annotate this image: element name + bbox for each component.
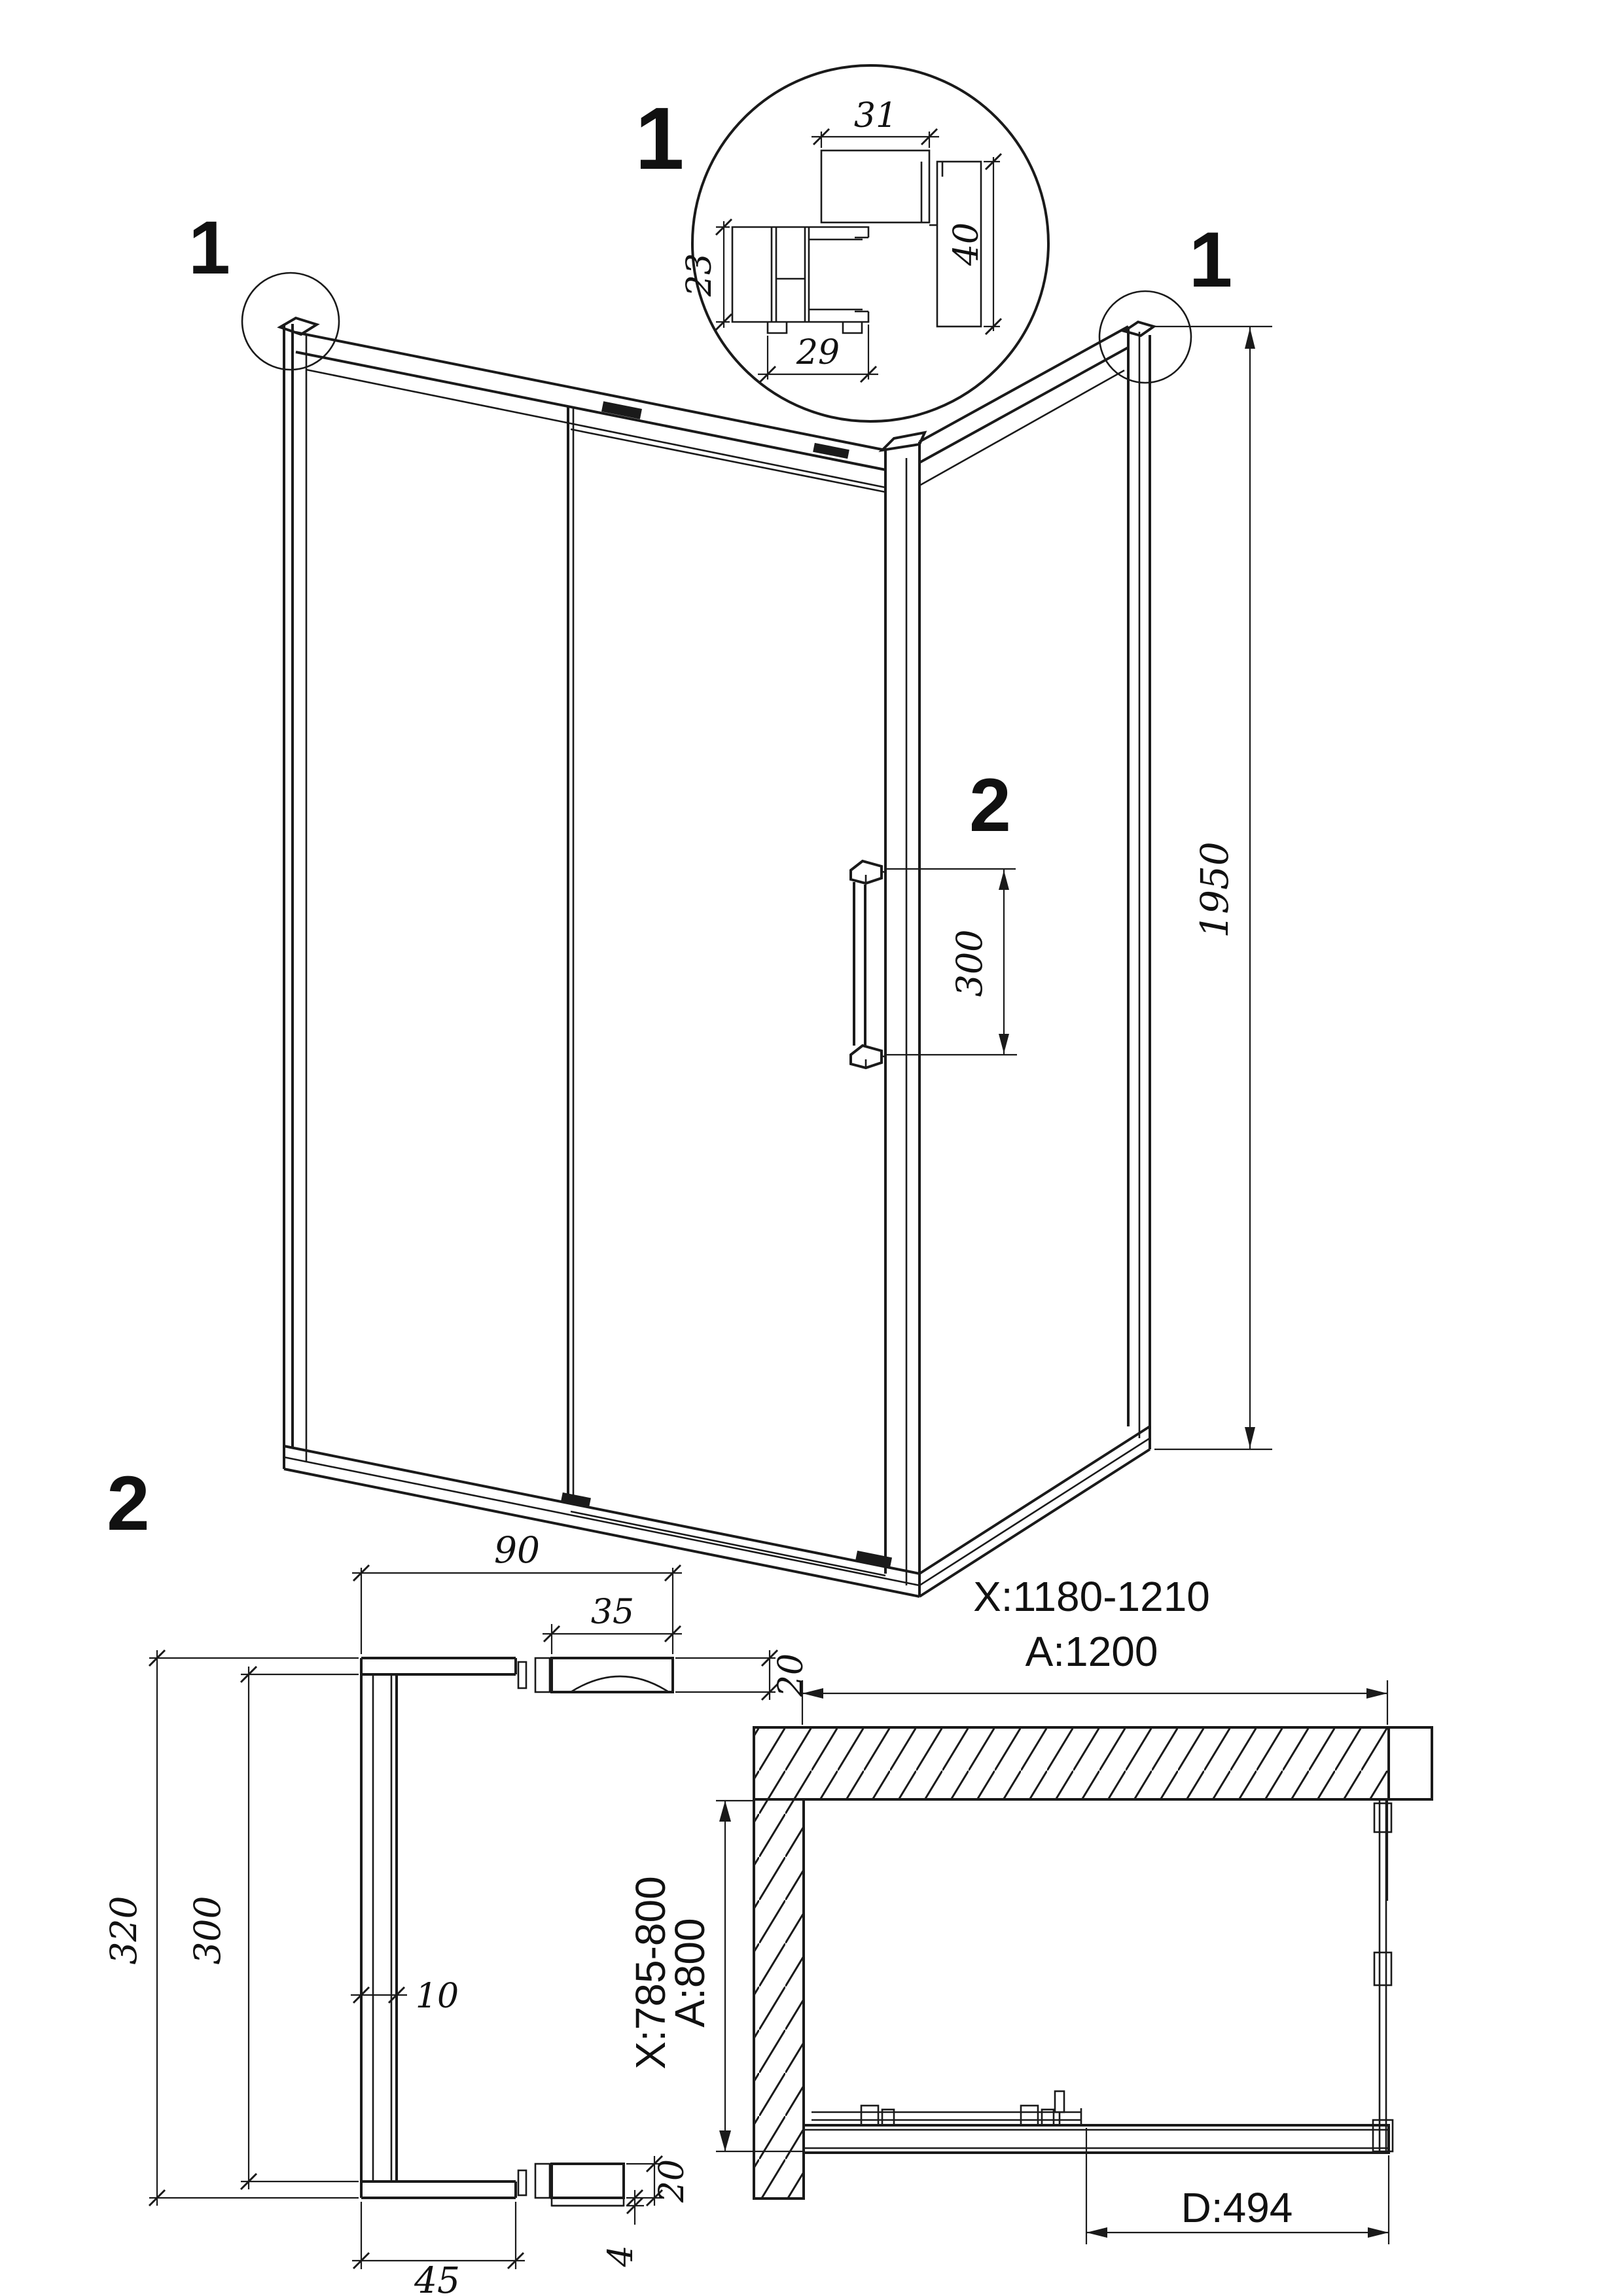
detail-1-view: 1 31 [635,65,1048,421]
wall-left [754,1799,804,2199]
handle-detail-view: 2 [103,1460,811,2296]
svg-text:D:494: D:494 [1181,2184,1293,2231]
handle-detail-label: 2 [107,1460,150,1547]
svg-text:29: 29 [796,333,840,372]
handle-dim-inner-length: 300 [187,1667,359,2189]
handle-dim-overall-length: 320 [103,1650,359,2206]
door-divider [568,406,885,1576]
svg-text:A:1200: A:1200 [1026,1628,1158,1675]
iso-view: 1 1 2 [188,206,1272,1597]
handle-dim-mount-width: 35 [543,1593,682,1654]
detail-1-dim-right: 40 [947,154,1001,334]
plan-view: X:1180-1210 A:1200 X:785-800 A:800 [627,1573,1432,2244]
svg-text:31: 31 [854,96,897,135]
handle-dim-overall-width: 90 [352,1529,682,1654]
handle-ref-label: 2 [969,764,1011,847]
svg-text:300: 300 [949,929,990,997]
callout-right-label: 1 [1189,216,1233,304]
side-bottom-rail [919,1426,1150,1597]
shower-enclosure-drawing: 1 31 [0,0,1623,2296]
svg-text:20: 20 [772,1653,811,1697]
technical-drawing-page: 1 31 [0,0,1623,2296]
svg-text:10: 10 [416,1977,459,2016]
svg-text:45: 45 [414,2259,460,2296]
svg-text:90: 90 [494,1529,540,1571]
plan-door-track [804,2091,1389,2153]
front-bottom-rail [284,1446,919,1597]
handle-dim-bar-thickness: 10 [351,1977,459,2016]
door-handle [851,861,885,1068]
plan-dim-door-opening: D:494 [1086,2128,1389,2244]
svg-text:20: 20 [652,2159,692,2203]
svg-text:40: 40 [947,222,986,266]
left-wall-profile [280,318,317,1469]
handle-dim-mount-height-bottom: 20 [626,2156,692,2206]
callout-circle-right [1099,291,1191,383]
handle-dim-mount-height-top: 20 [675,1650,811,1700]
iso-dim-height: 1950 [1154,327,1272,1449]
iso-dim-handle: 300 [885,869,1017,1055]
corner-post [882,433,925,1597]
side-top-rail [919,327,1128,486]
svg-text:300: 300 [187,1896,228,1965]
svg-text:A:800: A:800 [666,1918,713,2027]
svg-text:23: 23 [680,253,719,297]
svg-text:320: 320 [103,1896,145,1965]
right-wall-profile [1124,322,1154,1449]
detail-1-dim-top: 31 [811,96,939,148]
detail-1-label: 1 [635,89,684,188]
callout-left-label: 1 [188,206,230,290]
handle-geometry [361,1658,673,2206]
profile-section-geometry [732,150,981,333]
handle-dim-washer: 4 [601,2190,644,2268]
svg-text:4: 4 [601,2245,641,2267]
plan-side-panel [1373,1799,1393,2151]
wall-top [754,1727,1432,1799]
svg-text:35: 35 [591,1593,634,1632]
svg-text:X:1180-1210: X:1180-1210 [973,1573,1210,1620]
handle-dim-foot-width: 45 [352,2202,525,2296]
svg-text:1950: 1950 [1192,841,1237,938]
